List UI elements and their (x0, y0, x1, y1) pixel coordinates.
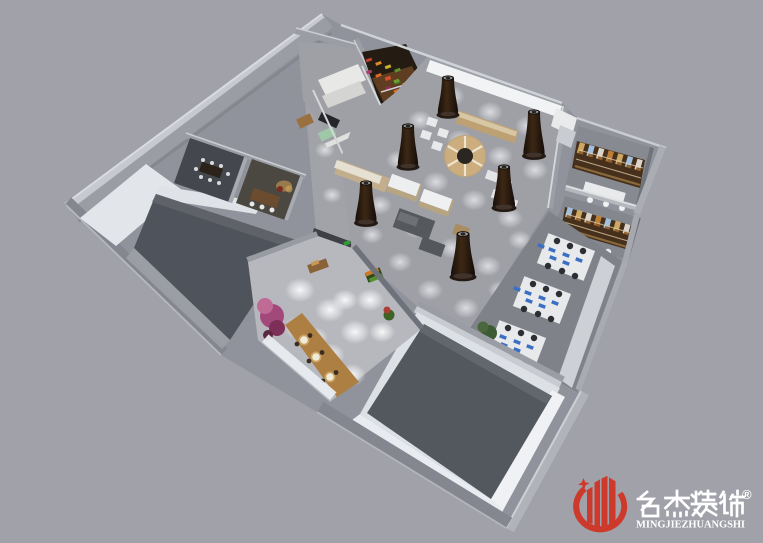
svg-text:®: ® (742, 487, 752, 502)
svg-text:MINGJIEZHUANGSHI: MINGJIEZHUANGSHI (636, 520, 745, 531)
